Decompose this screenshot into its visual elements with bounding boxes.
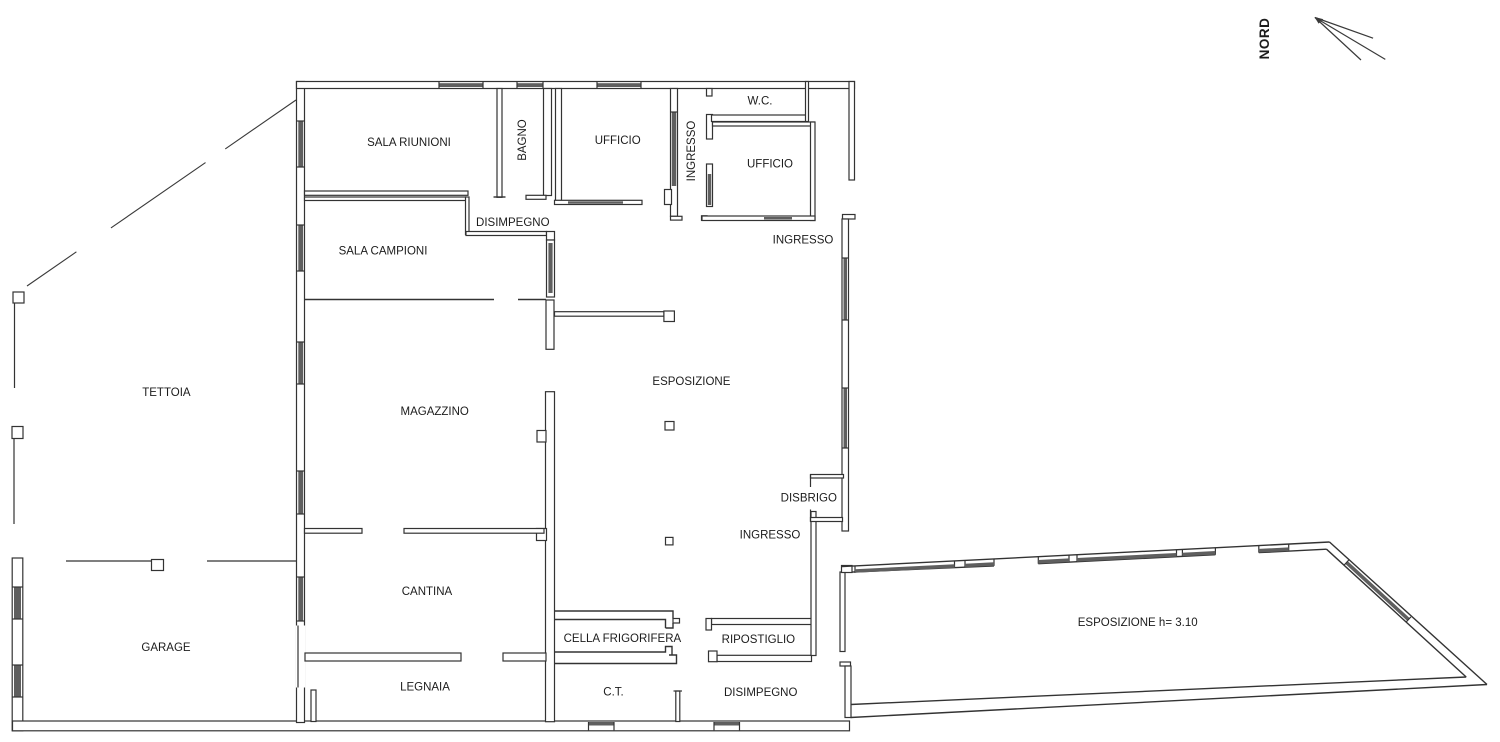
svg-text:NORD: NORD [1257, 18, 1272, 60]
svg-text:W.C.: W.C. [748, 96, 773, 108]
svg-text:DISIMPEGNO: DISIMPEGNO [476, 217, 550, 229]
svg-text:GARAGE: GARAGE [141, 642, 191, 654]
svg-text:INGRESSO: INGRESSO [773, 235, 834, 247]
svg-text:UFFICIO: UFFICIO [747, 159, 793, 171]
svg-text:MAGAZZINO: MAGAZZINO [401, 406, 469, 418]
svg-text:SALA RIUNIONI: SALA RIUNIONI [367, 137, 451, 149]
svg-text:DISBRIGO: DISBRIGO [781, 493, 837, 505]
svg-text:UFFICIO: UFFICIO [595, 135, 641, 147]
svg-text:ESPOSIZIONE: ESPOSIZIONE [652, 376, 730, 388]
svg-text:ESPOSIZIONE h= 3.10: ESPOSIZIONE h= 3.10 [1078, 617, 1198, 629]
svg-text:INGRESSO: INGRESSO [740, 530, 801, 542]
svg-text:CANTINA: CANTINA [402, 586, 453, 598]
svg-text:RIPOSTIGLIO: RIPOSTIGLIO [722, 634, 796, 646]
svg-text:INGRESSO: INGRESSO [686, 121, 698, 182]
svg-text:C.T.: C.T. [603, 687, 623, 699]
svg-text:LEGNAIA: LEGNAIA [400, 682, 450, 694]
svg-text:SALA CAMPIONI: SALA CAMPIONI [339, 246, 428, 258]
svg-text:TETTOIA: TETTOIA [142, 387, 191, 399]
svg-text:BAGNO: BAGNO [517, 119, 529, 161]
svg-text:CELLA FRIGORIFERA: CELLA FRIGORIFERA [564, 633, 682, 645]
svg-text:DISIMPEGNO: DISIMPEGNO [724, 687, 798, 699]
